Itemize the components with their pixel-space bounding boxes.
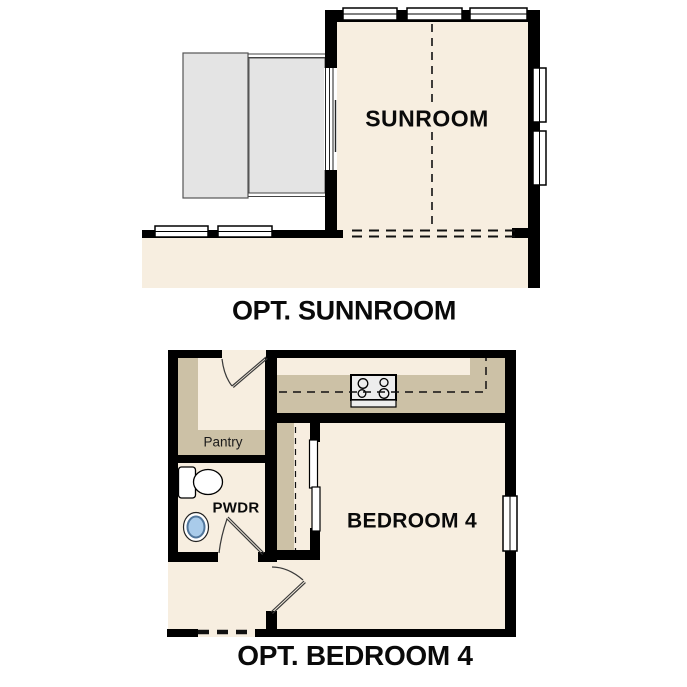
sunroom-caption: OPT. SUNNROOM xyxy=(232,298,456,325)
floorplan-sheet: SUNROOM OPT. SUNNROOM Pantry PWDR BEDROO… xyxy=(0,0,687,687)
window-icon xyxy=(343,8,527,20)
sunroom-room-label: SUNROOM xyxy=(365,108,489,131)
sliding-door-panels-icon xyxy=(183,53,326,198)
cooktop-icon xyxy=(351,375,396,407)
bedroom-caption: OPT. BEDROOM 4 xyxy=(237,642,472,670)
window-icon xyxy=(503,496,517,551)
powder-room-label: PWDR xyxy=(212,501,259,516)
sink-icon xyxy=(184,513,209,542)
sunroom-plan xyxy=(142,8,546,288)
house-floor-strip xyxy=(142,230,528,288)
pantry-label: Pantry xyxy=(203,435,242,449)
bedroom-room-label: BEDROOM 4 xyxy=(347,511,477,532)
floorplan-drawing xyxy=(0,0,687,687)
sliding-door-opening-icon xyxy=(324,68,337,170)
bedroom-plan xyxy=(167,350,517,637)
